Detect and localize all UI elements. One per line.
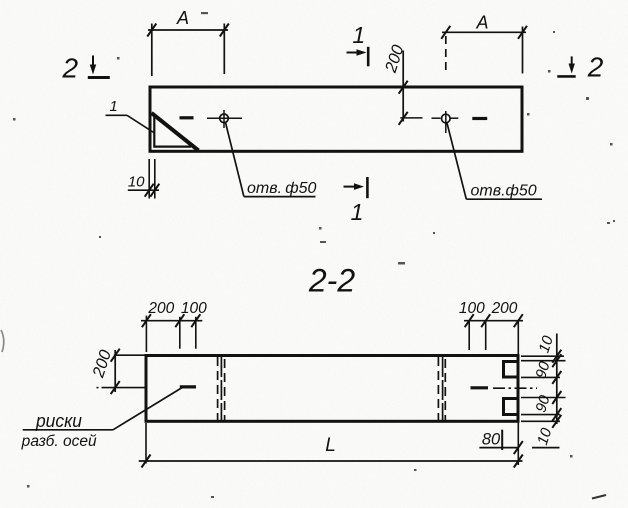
svg-text:100: 100 (181, 300, 207, 317)
svg-text:1: 1 (351, 199, 364, 225)
svg-text:отв.ф50: отв.ф50 (471, 183, 537, 200)
svg-text:2: 2 (62, 52, 79, 83)
svg-text:A: A (176, 8, 189, 28)
svg-text:L: L (325, 435, 336, 456)
svg-text:разб. осей: разб. осей (21, 433, 97, 450)
svg-text:A: A (475, 12, 488, 32)
svg-text:10: 10 (128, 173, 145, 190)
svg-text:80: 80 (482, 431, 501, 449)
svg-text:отв. ф50: отв. ф50 (247, 180, 316, 197)
svg-text:1: 1 (109, 98, 117, 115)
svg-text:риски: риски (35, 410, 82, 431)
svg-text:2: 2 (587, 51, 604, 82)
svg-text:200: 200 (491, 300, 518, 317)
svg-text:200: 200 (147, 300, 174, 317)
svg-text:1: 1 (352, 22, 365, 48)
svg-text:100: 100 (459, 300, 485, 317)
svg-text:2-2: 2-2 (308, 262, 355, 298)
